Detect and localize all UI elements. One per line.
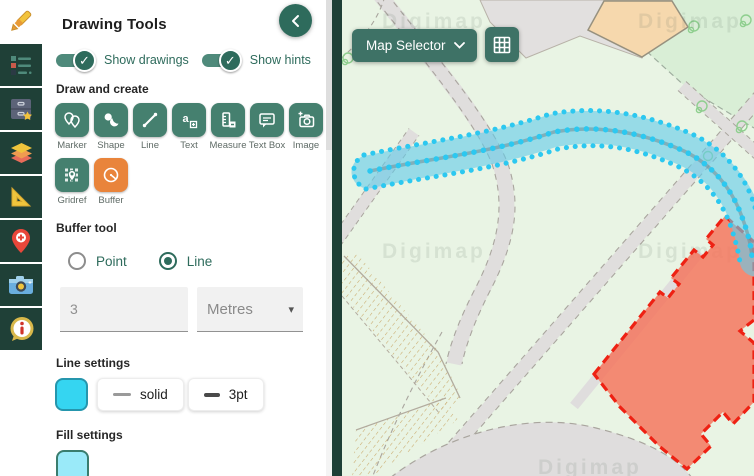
line-settings-row: solid 3pt — [55, 378, 318, 411]
crayon-icon — [7, 7, 35, 35]
set-square-icon — [8, 184, 34, 210]
buffer-distance-input[interactable] — [60, 287, 188, 332]
measure-icon — [218, 110, 238, 130]
marker-tool-button[interactable] — [55, 103, 89, 137]
digimap-watermark: Digimap — [382, 240, 486, 263]
drawers-star-icon — [8, 96, 34, 122]
text-box-icon — [257, 110, 277, 130]
sidebar-item-layers[interactable] — [0, 132, 42, 174]
camera-icon — [7, 273, 35, 297]
buffer-type-radio-group: Point Line — [68, 252, 318, 270]
gridref-tool-button[interactable] — [55, 158, 89, 192]
chevron-down-icon — [454, 42, 465, 49]
fill-settings-row — [55, 450, 318, 476]
map-pin-plus-icon — [9, 227, 33, 255]
draw-and-create-heading: Draw and create — [56, 82, 318, 96]
digimap-watermark: Digimap — [638, 10, 742, 33]
show-drawings-label: Show drawings — [104, 53, 189, 67]
chevron-left-icon — [291, 14, 300, 28]
svg-text:a: a — [183, 113, 190, 125]
buffer-icon — [101, 165, 121, 185]
buffer-tool-button[interactable] — [94, 158, 128, 192]
buffer-size-row: Metres ▾ — [60, 287, 318, 332]
grid-icon — [492, 35, 512, 55]
point-radio[interactable] — [68, 252, 86, 270]
check-icon: ✓ — [73, 49, 96, 72]
panel-scrollbar[interactable] — [326, 0, 332, 476]
line-width-icon — [204, 393, 220, 397]
text-icon: a — [179, 110, 199, 130]
sidebar-item-help[interactable] — [0, 308, 42, 350]
tool-marker: Marker — [55, 103, 89, 151]
sidebar-item-legend[interactable] — [0, 44, 42, 86]
grid-overlay-button[interactable] — [485, 27, 519, 62]
shape-icon — [101, 110, 121, 130]
point-radio-label: Point — [96, 254, 127, 269]
drawing-tools-panel: Drawing Tools ✓ Show drawings ✓ Show hin… — [42, 0, 332, 476]
layers-icon — [8, 140, 35, 167]
panel-divider — [332, 0, 342, 476]
digimap-watermark: Digimap — [538, 456, 642, 476]
map-canvas[interactable]: Digimap Digimap Digimap Digimap Digimap … — [342, 0, 754, 476]
tool-grid: Marker Shape Line — [55, 103, 331, 206]
line-radio[interactable] — [159, 252, 177, 270]
line-radio-label: Line — [187, 254, 213, 269]
gridref-icon — [62, 165, 82, 185]
show-hints-label: Show hints — [250, 53, 311, 67]
show-drawings-toggle[interactable]: ✓ — [56, 54, 92, 67]
shape-tool-button[interactable] — [94, 103, 128, 137]
solid-line-icon — [113, 393, 131, 396]
tool-text: a Text — [172, 103, 206, 151]
caret-down-icon: ▾ — [288, 303, 294, 316]
line-settings-heading: Line settings — [56, 356, 318, 370]
tool-image: Image — [289, 103, 323, 151]
buffer-unit-select[interactable]: Metres ▾ — [197, 287, 303, 332]
collapse-panel-button[interactable] — [279, 4, 312, 37]
line-color-swatch[interactable] — [55, 378, 88, 411]
icon-rail — [0, 0, 42, 476]
tool-measure: Measure — [211, 103, 245, 151]
line-style-button[interactable]: solid — [97, 378, 184, 411]
sidebar-item-saved-maps[interactable] — [0, 88, 42, 130]
fill-color-swatch[interactable] — [56, 450, 89, 476]
tool-shape: Shape — [94, 103, 128, 151]
map-artwork: Digimap Digimap Digimap Digimap Digimap — [342, 0, 754, 476]
buffer-unit-value: Metres — [207, 301, 253, 318]
image-tool-button[interactable] — [289, 103, 323, 137]
marker-icon — [62, 110, 82, 130]
buffer-tool-heading: Buffer tool — [56, 221, 318, 235]
map-selector-button[interactable]: Map Selector — [352, 29, 477, 62]
sidebar-item-drawing-tools[interactable] — [0, 0, 42, 42]
toggles-row: ✓ Show drawings ✓ Show hints — [56, 53, 318, 67]
legend-list-icon — [8, 52, 34, 78]
tool-buffer: Buffer — [94, 158, 128, 206]
measure-tool-button[interactable] — [211, 103, 245, 137]
sidebar-item-markers[interactable] — [0, 220, 42, 262]
tool-text-box: Text Box — [250, 103, 284, 151]
tool-gridref: Gridref — [55, 158, 89, 206]
info-bubble-icon — [8, 316, 35, 343]
line-width-button[interactable]: 3pt — [188, 378, 264, 411]
show-hints-toggle[interactable]: ✓ — [202, 54, 238, 67]
fill-settings-heading: Fill settings — [56, 428, 318, 442]
line-tool-button[interactable] — [133, 103, 167, 137]
line-icon — [140, 110, 160, 130]
image-camera-icon — [296, 110, 316, 130]
tool-line: Line — [133, 103, 167, 151]
sidebar-item-snapshot[interactable] — [0, 264, 42, 306]
digimap-app: Drawing Tools ✓ Show drawings ✓ Show hin… — [0, 0, 754, 476]
text-box-tool-button[interactable] — [250, 103, 284, 137]
check-icon: ✓ — [219, 49, 242, 72]
text-tool-button[interactable]: a — [172, 103, 206, 137]
sidebar-item-measurement[interactable] — [0, 176, 42, 218]
